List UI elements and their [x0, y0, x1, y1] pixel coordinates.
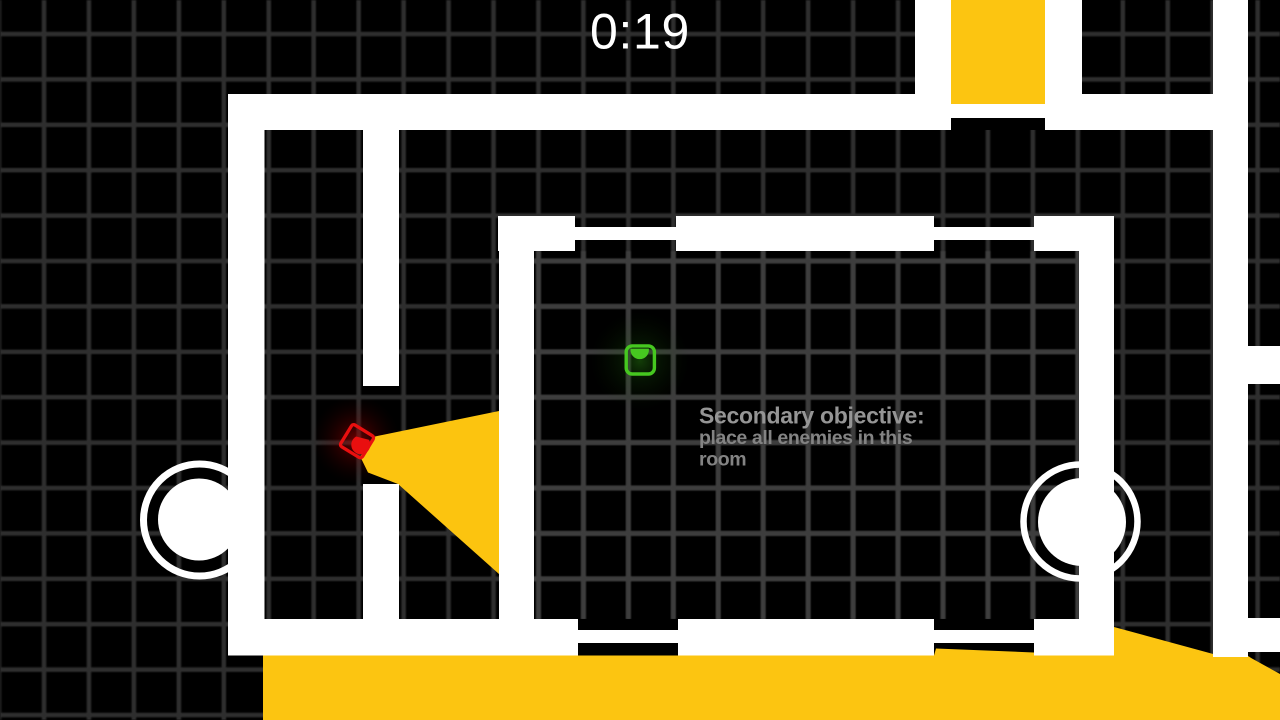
svg-text:place all enemies in this: place all enemies in this — [699, 427, 913, 449]
svg-text:0:19: 0:19 — [590, 4, 690, 60]
svg-text:room: room — [699, 449, 746, 471]
svg-text:Secondary objective:: Secondary objective: — [699, 403, 924, 429]
